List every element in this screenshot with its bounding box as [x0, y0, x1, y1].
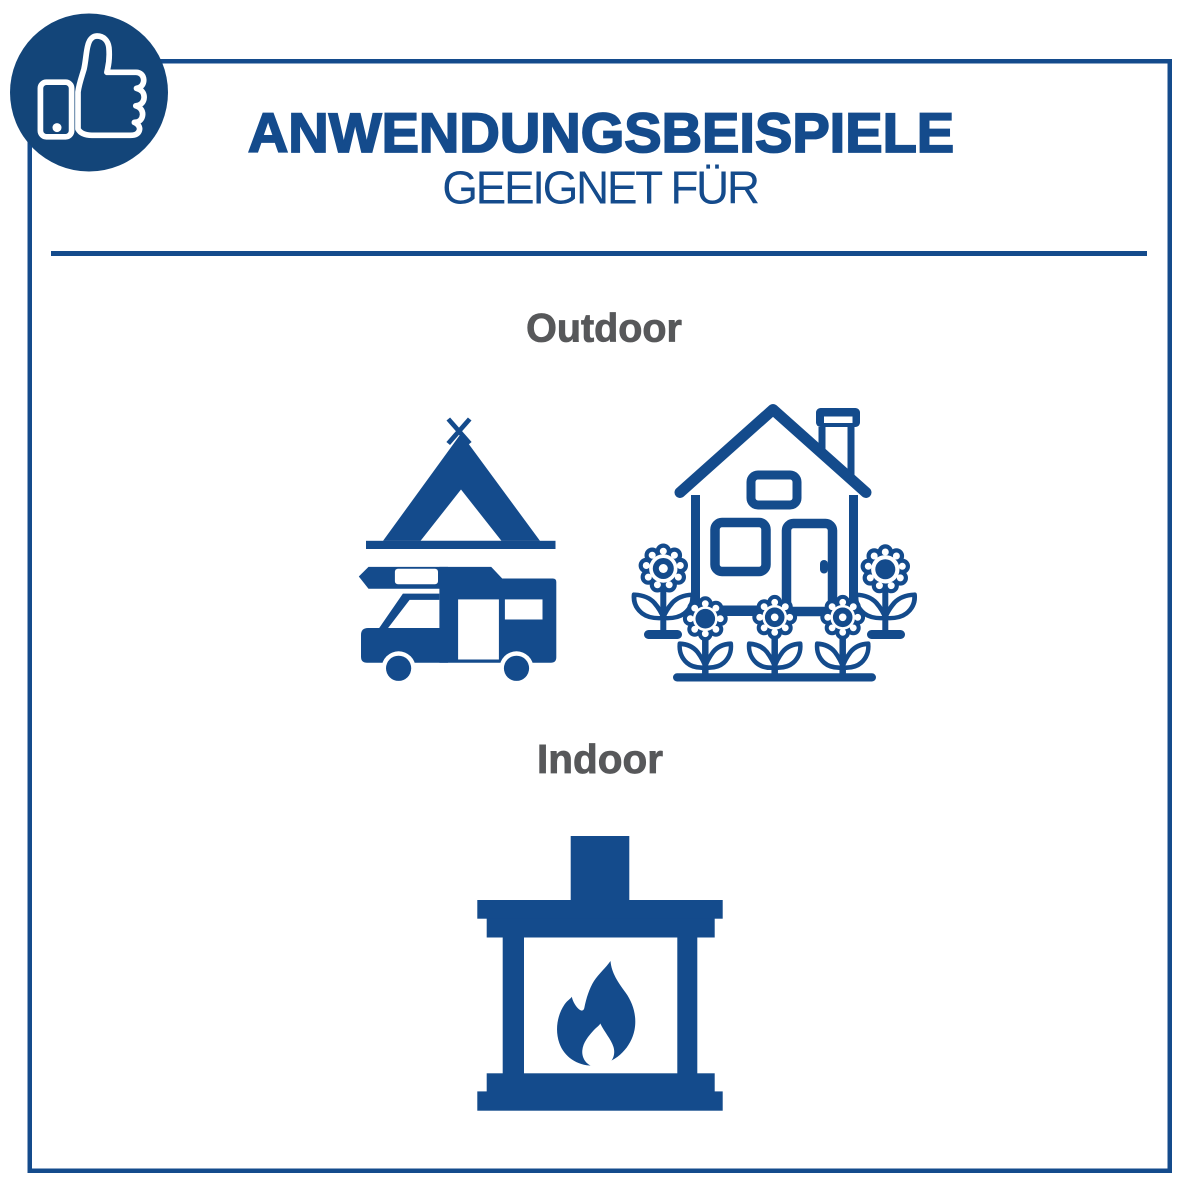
svg-text:ANWENDUNGSBEISPIELE: ANWENDUNGSBEISPIELE: [248, 101, 954, 164]
svg-text:GEEIGNET FÜR: GEEIGNET FÜR: [442, 162, 759, 214]
svg-text:Indoor: Indoor: [537, 736, 663, 782]
svg-text:Outdoor: Outdoor: [526, 307, 682, 351]
